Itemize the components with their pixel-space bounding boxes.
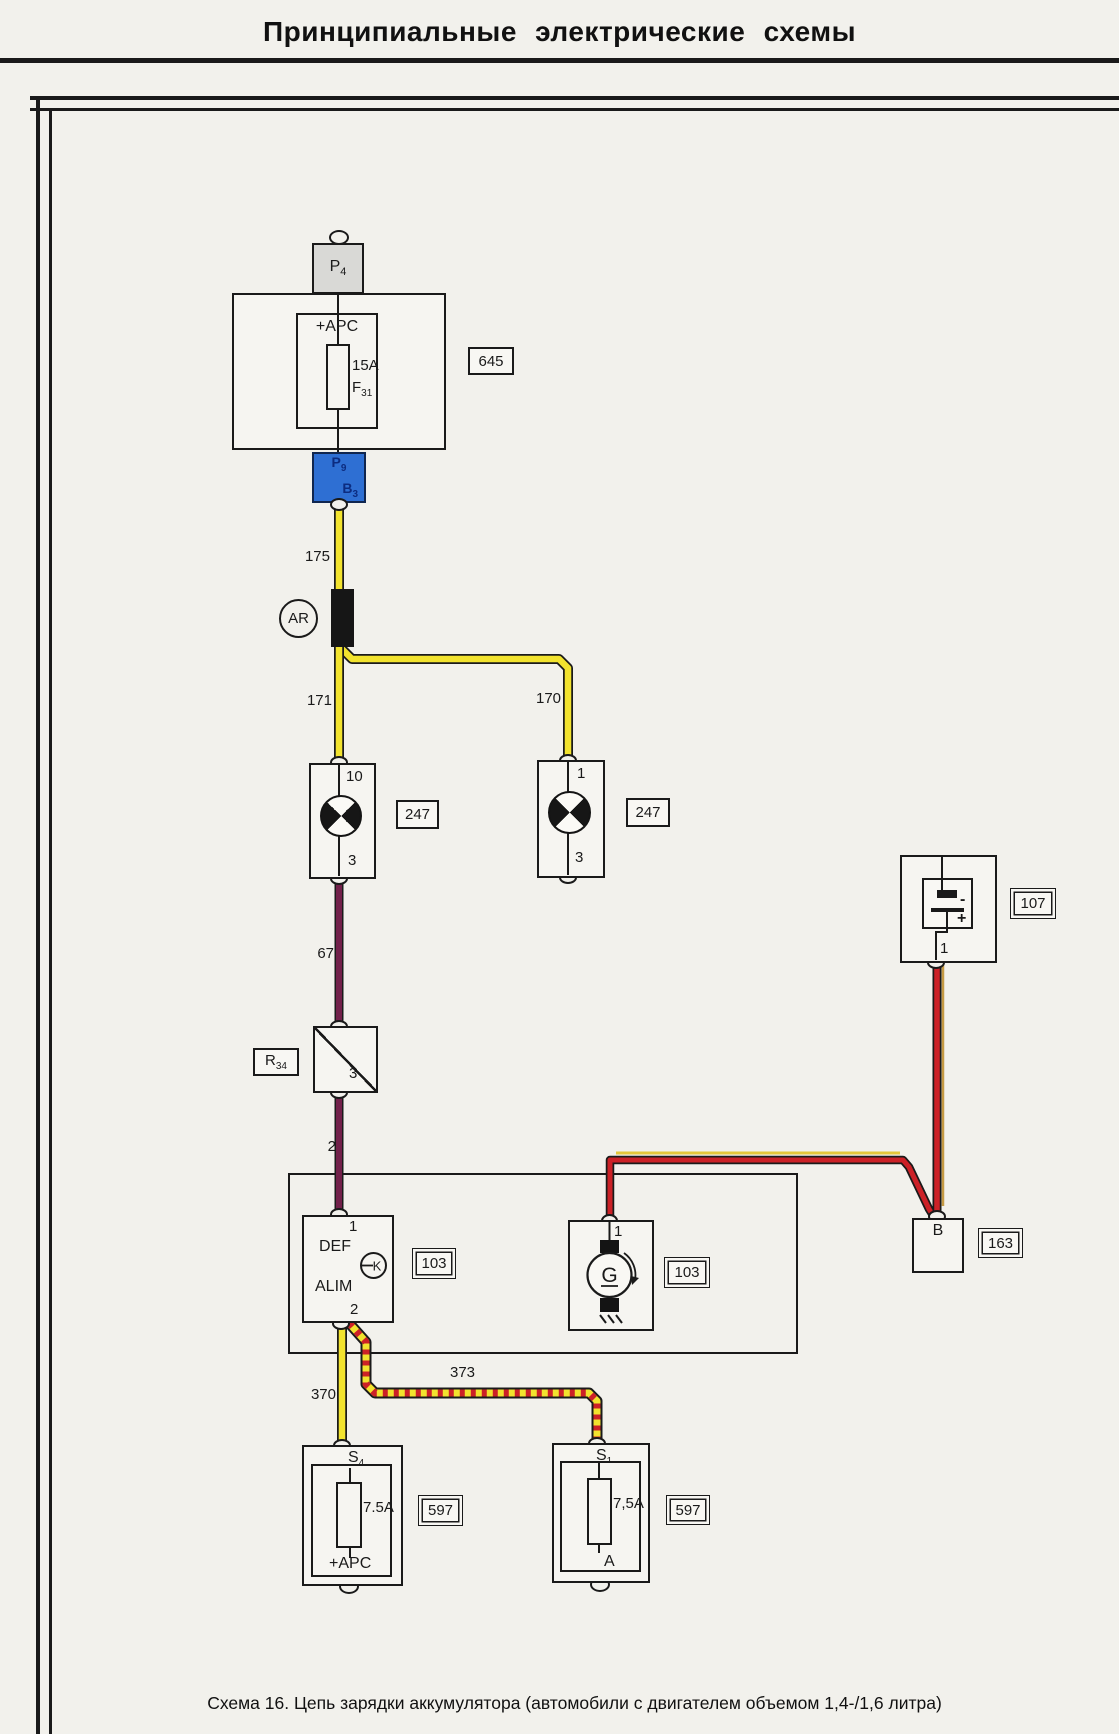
wire-label-67: 67	[290, 946, 334, 963]
lamp-icon	[320, 795, 362, 837]
connector-b3-label: B3	[342, 481, 358, 500]
regulator-alim-label: ALIM	[315, 1278, 352, 1296]
fuse-icon	[326, 344, 350, 410]
lamp-icon	[548, 791, 591, 834]
fuse-icon	[336, 1482, 362, 1548]
warning-lamp-right: 1 3	[537, 760, 605, 878]
wire-label-370: 370	[290, 1387, 336, 1404]
pin-label: 3	[348, 853, 356, 870]
wire-373-yellow-red-striped	[349, 1323, 597, 1450]
internal-lead-upper	[337, 295, 339, 345]
battery-icon: - + 1	[902, 857, 999, 965]
fuse-feed-label: A	[604, 1553, 615, 1571]
wire-label-2: 2	[296, 1139, 336, 1156]
generator: 1 G	[568, 1220, 654, 1331]
splice-ar-label: AR	[288, 610, 309, 627]
scanned-wiring-diagram-page: Принципиальные электрические схемы	[0, 0, 1119, 1734]
lead	[567, 762, 569, 793]
pin-label: 3	[349, 1066, 357, 1083]
connector-p9-label: P9	[314, 455, 364, 474]
pin-label: 2	[350, 1302, 358, 1319]
ref-box-163: 163	[978, 1228, 1023, 1258]
generator-motor-icon: G	[570, 1222, 651, 1328]
wire-red-battery-to-junction	[937, 958, 943, 1215]
connector-r34: 3	[313, 1026, 378, 1093]
warning-lamp-left: 10 3	[309, 763, 376, 879]
pin-label: 1	[349, 1219, 357, 1236]
fuse-rating: 15A	[352, 358, 379, 375]
fuse-rating: 7.5A	[363, 1500, 394, 1517]
svg-text:K: K	[373, 1259, 382, 1274]
fuse-rating: 7,5A	[613, 1496, 644, 1513]
ref-box-r34: R34	[253, 1048, 299, 1076]
connector-p4-label: P4	[330, 258, 347, 278]
battery-plus: +	[957, 910, 966, 928]
pin-label: 10	[346, 769, 363, 786]
ref-box-597-right: 597	[666, 1495, 710, 1525]
fuse-icon	[587, 1478, 612, 1545]
wire-label-175: 175	[282, 549, 330, 566]
ref-box-247-right: 247	[626, 798, 670, 827]
wire-red-generator-to-junction	[610, 1153, 934, 1226]
ground-icon	[600, 1315, 622, 1323]
fuse-s4-inner: 7.5A +APC	[311, 1464, 392, 1577]
regulator-def-label: DEF	[319, 1238, 351, 1256]
wire-label-171: 171	[286, 693, 332, 710]
fuse-s1-inner: 7,5A A	[560, 1461, 641, 1572]
k-symbol-icon: K	[360, 1252, 387, 1279]
wire-label-373: 373	[450, 1365, 498, 1382]
battery-minus: -	[960, 891, 965, 909]
wire-label-170: 170	[536, 691, 582, 708]
connector-p9-b3: P9 B3	[312, 452, 366, 503]
ref-box-107: 107	[1010, 888, 1056, 919]
splice-icon	[331, 589, 354, 647]
svg-text:G: G	[601, 1264, 617, 1287]
pin-label: 1	[577, 766, 585, 783]
lead	[946, 912, 948, 933]
pin-label: 1	[940, 941, 948, 958]
junction-163: B	[912, 1218, 964, 1273]
fuse-s1: S1 7,5A A	[552, 1443, 650, 1583]
fuse-s4: S4 7.5A +APC	[302, 1445, 403, 1586]
fuse-id: F31	[352, 380, 372, 399]
lead	[338, 835, 340, 876]
fuse-feed-label: +APC	[329, 1555, 371, 1573]
ref-box-103-regulator: 103	[412, 1248, 456, 1279]
pin-label: 3	[575, 850, 583, 867]
fusebox-645: +APC 15A F31	[232, 293, 446, 450]
wire-170-yellow	[341, 648, 568, 764]
voltage-regulator: 1 DEF K ALIM 2	[302, 1215, 394, 1323]
connector-p4: P4	[312, 243, 364, 294]
lead	[935, 931, 937, 960]
splice-ar-circle: AR	[279, 599, 318, 638]
lead	[567, 833, 569, 875]
pin-label: B	[914, 1222, 962, 1240]
connector-bump	[330, 498, 348, 511]
ref-box-597-left: 597	[418, 1495, 463, 1526]
ref-box-103-generator: 103	[664, 1257, 710, 1288]
lead	[338, 765, 340, 797]
ref-box-645: 645	[468, 347, 514, 375]
internal-lead-lower	[337, 410, 339, 452]
ref-box-247-left: 247	[396, 800, 439, 829]
battery: - + 1	[900, 855, 997, 963]
